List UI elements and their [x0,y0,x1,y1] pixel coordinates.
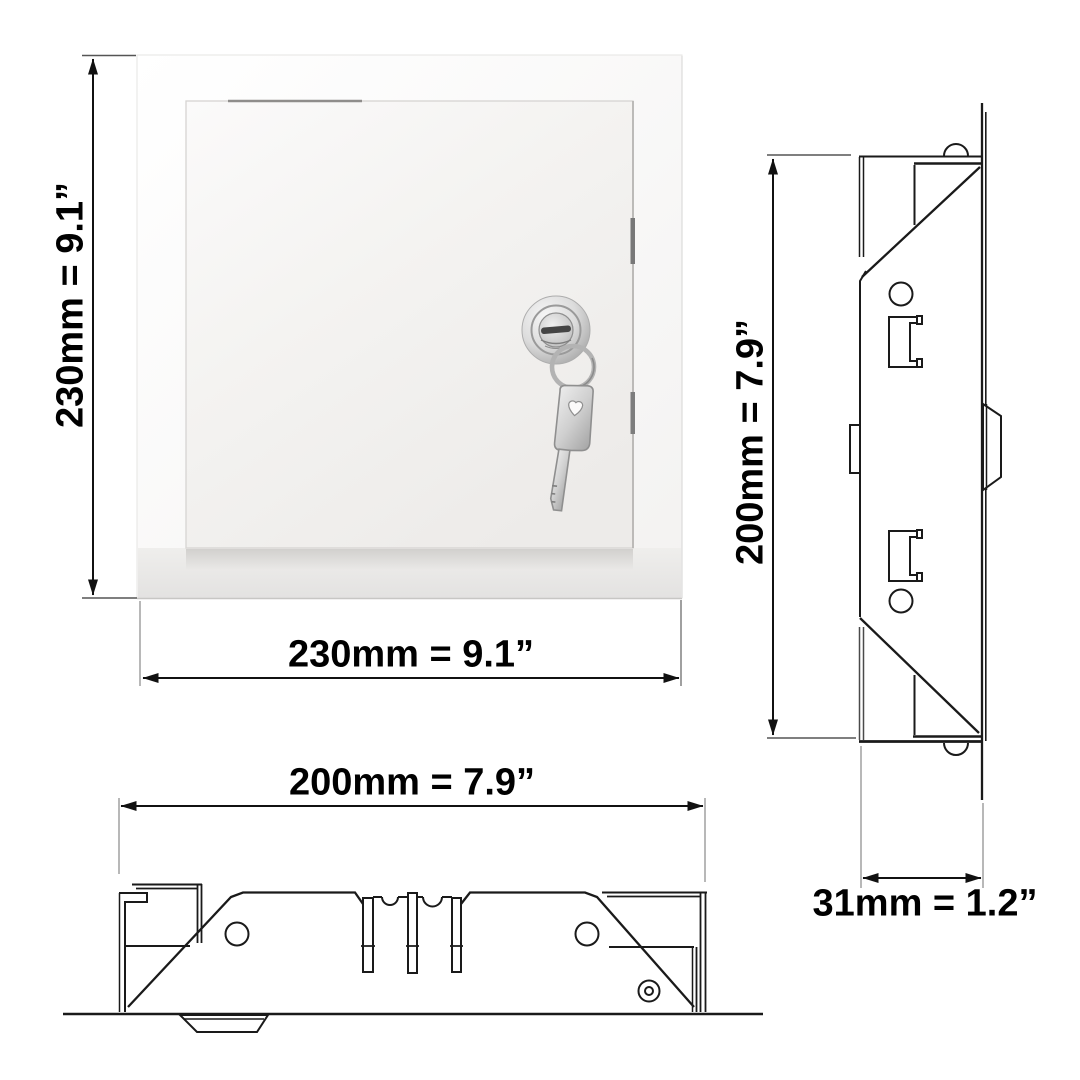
clip-bottom-tabs [916,530,922,581]
notch-arc [423,897,442,907]
front-view [82,55,682,686]
flange-bump [944,743,968,755]
clip-top [889,317,917,367]
left-diagonal [128,893,363,1008]
side-depth-dimension [861,746,983,888]
hinge-mark-top [631,218,636,264]
top-diagonal [862,167,980,277]
notch-arc [382,897,398,905]
dim-label-bottom-width: 200mm = 7.9” [289,762,535,805]
bottom-diagonal [860,618,979,733]
top-frame-flange [859,144,981,257]
dim-label-front-width: 230mm = 9.1” [288,634,534,677]
bottom-frame-flange [859,627,981,755]
spring-clips [889,316,922,581]
slot-bar [452,898,461,972]
slot-bar [363,898,373,972]
bottom-width-dimension [119,798,705,882]
clip-top-tabs [916,316,922,367]
left-frame-bracket [119,884,202,1012]
right-frame-bracket [602,892,707,1012]
bump-outline [180,1015,268,1032]
dim-label-side-height: 200mm = 7.9” [730,319,773,565]
side-height-dimension [767,155,856,738]
key-bow [554,383,596,453]
hinge-mark-bottom [631,392,636,434]
mounting-hole [890,590,913,613]
bracket-line [119,893,147,1012]
clip-bottom [889,531,917,581]
flange-bump [944,144,968,156]
latch-outline [983,404,1001,490]
dim-label-side-depth: 31mm = 1.2” [813,883,1038,926]
side-tab [850,425,860,473]
rivet [639,981,660,1002]
technical-drawing-page: 230mm = 9.1” 230mm = 9.1” 200mm = 7.9” 2… [0,0,1080,1080]
slot-bar [408,893,417,973]
side-view [767,103,1001,888]
lock-bump-below [180,1015,268,1032]
rivet-center [645,987,653,995]
bottom-view [63,798,763,1032]
dim-label-front-height: 230mm = 9.1” [50,182,93,428]
center-slots [361,893,463,973]
latch-knob [983,404,1001,490]
mounting-hole [226,923,249,946]
mounting-hole [890,283,913,306]
mounting-hole [576,923,599,946]
door-bottom-shadow [186,549,633,570]
